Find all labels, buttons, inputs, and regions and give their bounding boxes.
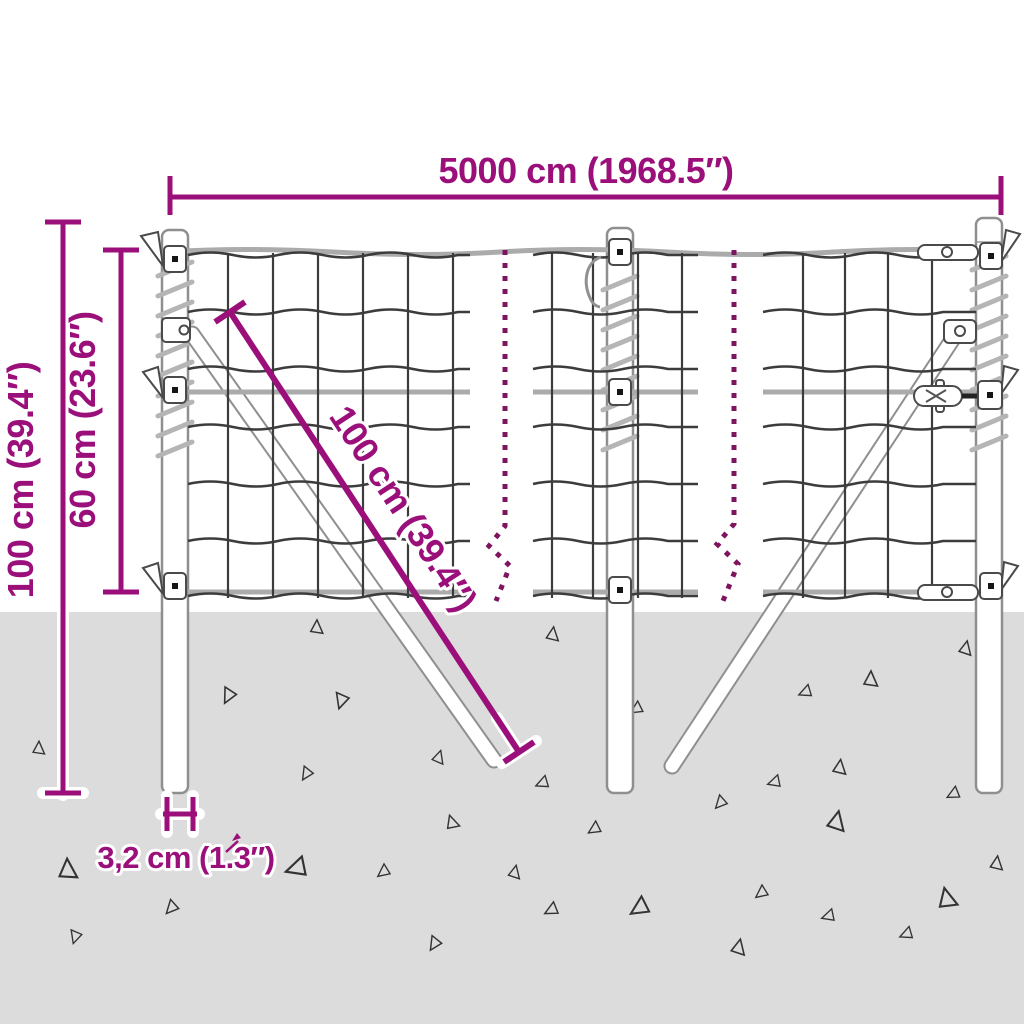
mesh-height-label: 60 cm (23.6″)	[62, 312, 103, 529]
stretcher-bar-top	[918, 245, 978, 260]
post-height-label: 100 cm (39.4″)	[0, 362, 41, 598]
total-width-label: 5000 cm (1968.5″)	[439, 150, 734, 191]
break-line-left	[489, 250, 510, 601]
fence-dimension-diagram: 5000 cm (1968.5″) 100 cm (39.4″) 60 cm (…	[0, 0, 1024, 1024]
mesh-section-3	[763, 253, 976, 599]
dimension-mesh-height: 60 cm (23.6″)	[62, 250, 139, 592]
fence-post-right	[972, 218, 1006, 793]
break-line-right	[717, 250, 738, 601]
brace-length-label: 100 cm (39.4″)	[321, 398, 485, 618]
stretcher-bar-bottom	[918, 585, 978, 600]
fence-post-left	[158, 230, 192, 793]
post-diameter-label: 3,2 cm (1.3″)	[97, 840, 274, 875]
diagram-svg: 5000 cm (1968.5″) 100 cm (39.4″) 60 cm (…	[0, 0, 1024, 1024]
dimension-total-width: 5000 cm (1968.5″)	[170, 150, 1001, 215]
brace-bracket-right	[944, 320, 976, 343]
